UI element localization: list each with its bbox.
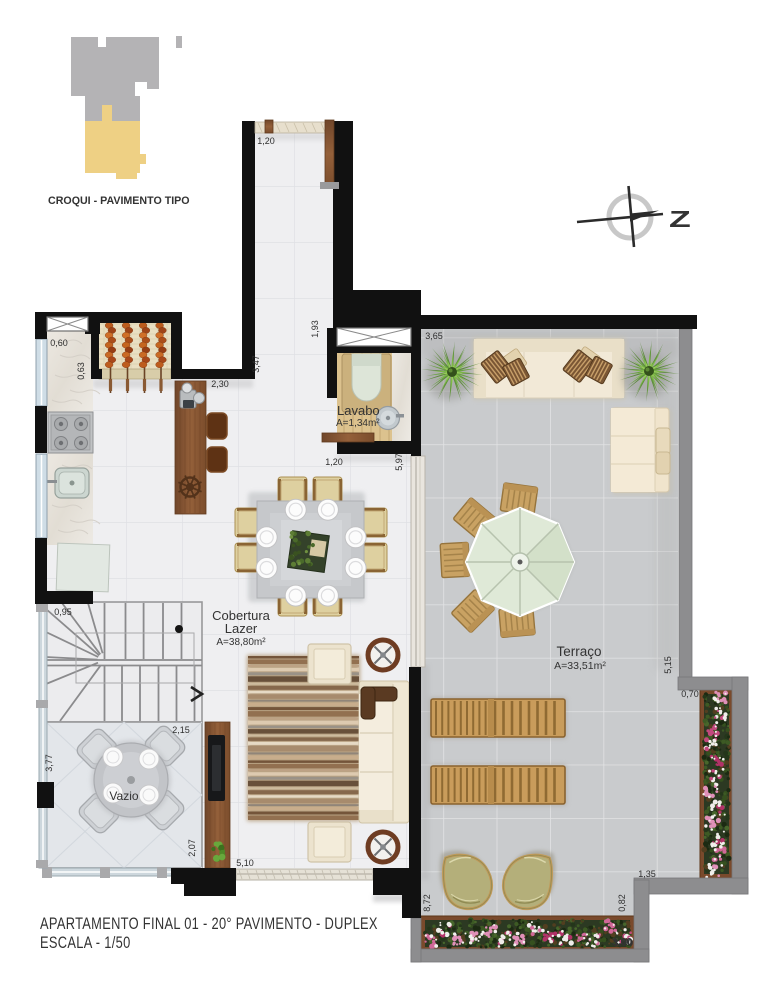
svg-text:Lavabo: Lavabo [337, 403, 380, 418]
svg-text:Lazer: Lazer [225, 621, 258, 636]
svg-text:1,20: 1,20 [325, 457, 343, 467]
svg-text:0,70: 0,70 [681, 689, 699, 699]
svg-text:2,07: 2,07 [187, 839, 197, 857]
svg-text:3,65: 3,65 [425, 331, 443, 341]
svg-text:2,15: 2,15 [172, 725, 190, 735]
svg-text:Z: Z [669, 207, 691, 232]
svg-text:A=38,80m²: A=38,80m² [216, 637, 266, 648]
svg-text:5,15: 5,15 [663, 656, 673, 674]
svg-text:0,82: 0,82 [617, 894, 627, 912]
svg-text:APARTAMENTO FINAL 01 - 20° PA: APARTAMENTO FINAL 01 - 20° PAVIMENTO - D… [40, 916, 378, 934]
svg-text:CROQUI - PAVIMENTO TIPO: CROQUI - PAVIMENTO TIPO [48, 195, 190, 207]
svg-text:3,77: 3,77 [44, 754, 54, 772]
svg-text:5,10: 5,10 [236, 858, 254, 868]
svg-text:5,97: 5,97 [394, 453, 404, 471]
svg-text:0,60: 0,60 [50, 338, 68, 348]
svg-text:A=33,51m²: A=33,51m² [554, 660, 606, 672]
svg-text:A=1,34m²: A=1,34m² [336, 418, 380, 429]
svg-text:3,00: 3,00 [612, 936, 633, 948]
svg-text:3,47: 3,47 [251, 355, 261, 373]
svg-text:0,95: 0,95 [54, 607, 72, 617]
svg-text:1,20: 1,20 [257, 136, 275, 146]
svg-text:Terraço: Terraço [556, 644, 601, 659]
svg-text:Vazio: Vazio [109, 789, 138, 803]
svg-text:1,35: 1,35 [638, 869, 656, 879]
svg-text:0,63: 0,63 [76, 362, 86, 380]
svg-text:2,30: 2,30 [211, 379, 229, 389]
svg-text:8,72: 8,72 [422, 894, 432, 912]
svg-text:ESCALA - 1/50: ESCALA - 1/50 [40, 935, 131, 953]
svg-text:1,93: 1,93 [310, 320, 320, 338]
